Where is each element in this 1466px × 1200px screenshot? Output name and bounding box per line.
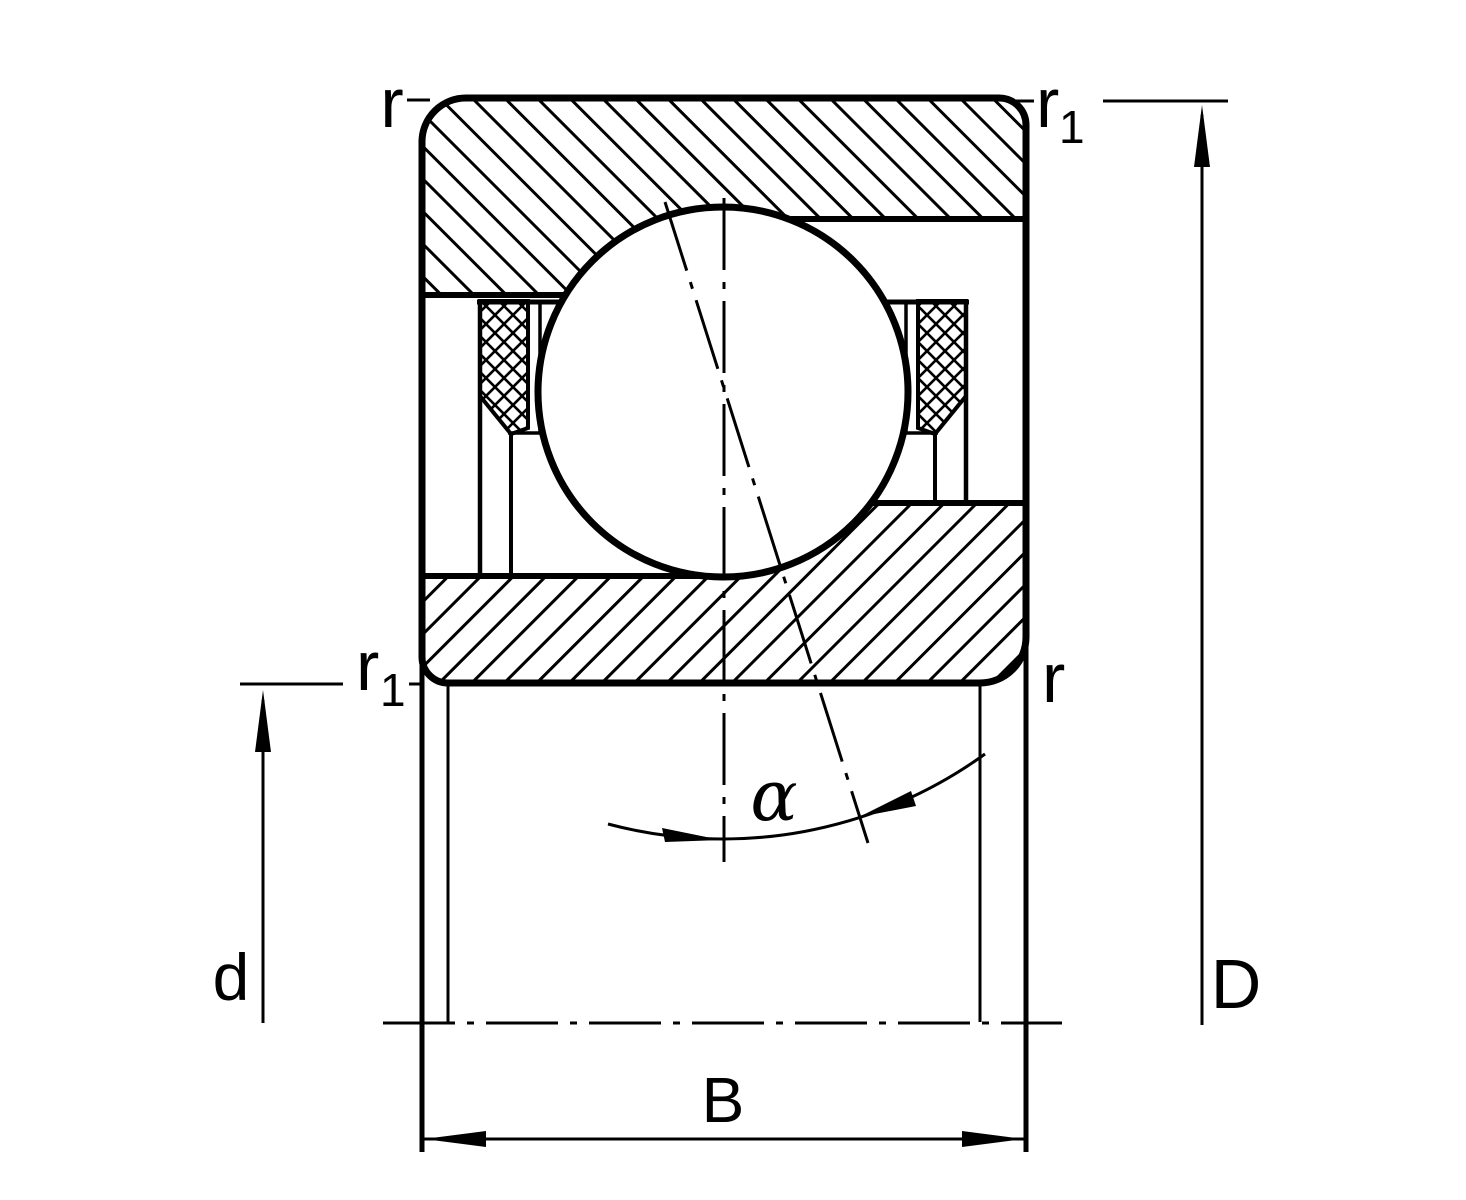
cage-left-crosshatch — [480, 301, 528, 434]
label-r-mid-right: r — [1042, 639, 1065, 717]
dim-B-arrowhead-left — [424, 1131, 486, 1147]
angle-arc-arrowhead-left — [662, 828, 721, 842]
label-r1-top-right-base: r — [1036, 64, 1059, 142]
label-r1-mid-left-base: r — [356, 627, 379, 705]
label-d: d — [213, 940, 250, 1014]
label-r-top-left: r — [380, 64, 403, 142]
label-D: D — [1211, 945, 1262, 1023]
bearing-cross-section-figure: r r 1 r 1 r d D B α — [0, 0, 1466, 1200]
label-alpha: α — [750, 755, 797, 837]
dim-D-arrowhead — [1194, 105, 1210, 167]
label-r1-top-right-subscript: 1 — [1059, 101, 1085, 153]
angle-arc-arrowhead-right — [859, 791, 916, 817]
cage-right-crosshatch — [918, 301, 966, 434]
dim-B-arrowhead-right — [962, 1131, 1024, 1147]
angular-contact-ball-bearing-diagram: r r 1 r 1 r d D B α — [0, 0, 1466, 1200]
label-r1-mid-left-subscript: 1 — [380, 664, 406, 716]
label-B: B — [702, 1064, 745, 1136]
dim-d-arrowhead — [255, 690, 271, 752]
